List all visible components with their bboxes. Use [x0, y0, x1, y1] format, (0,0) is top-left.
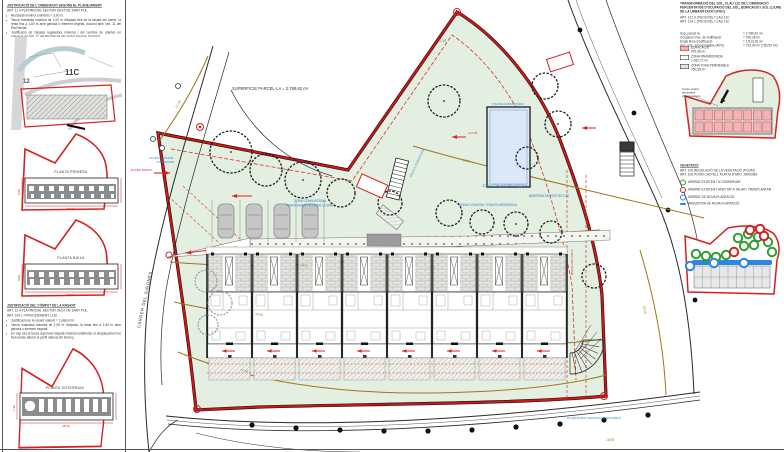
legend-label: EDIFICACIÓ: [691, 46, 709, 50]
legend-sub: 976,36 m²: [691, 50, 705, 54]
tree-new-icon: [680, 195, 686, 201]
sheet-border-bottom: [0, 449, 784, 450]
vegetation-title: VEGETACIÓ: [680, 164, 782, 168]
label-barrier: BARRERA DE PROTECCIÓ: [529, 193, 570, 198]
tree-removed-icon: [680, 187, 686, 193]
building-block: 8.00 50.04: [17, 178, 121, 211]
vegetation-diagram: [680, 224, 782, 320]
plan-planta-soterrani: PLANTA SOTERRANI 7.20 48.10: [5, 345, 125, 452]
tree-keep-icon: [680, 180, 686, 186]
veg-item-label: ARBRAT EXISTENT A CONSERVAR: [688, 181, 741, 185]
note-bullet: Justificació de la rasant natural = 1 pl…: [11, 319, 121, 323]
label-parking-zone-2: APARCAMENT A L'AIRE LLIURE: [286, 204, 333, 208]
map-label-12: 12: [23, 79, 30, 85]
parcel-surface-label: SUPERFÍCIE PARCEL·LA = 2.789,62 m²: [232, 86, 309, 91]
note-bullet: En cap cas la tanca superarà l'alçada mà…: [11, 332, 121, 340]
note-bullet: Reculada mínima a llindars = 3,00 m.: [11, 14, 121, 18]
label-access-ped-2: COMUNITARI: [156, 160, 174, 164]
street-name-label: CARRER DEL GIRONÈS: [136, 271, 153, 329]
plan-label: PLANTA BAIXA: [57, 256, 85, 260]
svg-text:21.40: 21.40: [174, 99, 182, 108]
legend-sub: 1.062,71 m²: [691, 59, 708, 63]
occupation-diagram: Sostre màxim admissible s/ planejament: [680, 66, 782, 158]
street-stairs-icon: [620, 142, 634, 176]
building-block: 7.20 48.10: [12, 393, 116, 428]
pool-outline: [753, 78, 763, 102]
label-access-car-bottom: ACCÉS RODAT VEHICLES APARCAMENT: [567, 415, 622, 420]
note-article: ART. 11.4 PLA PARCIAL SECTOR OEST DE SAN…: [7, 309, 121, 313]
plan-label: PLANTA PRIMERA: [54, 170, 88, 174]
plan-label: PLANTA SOTERRANI: [46, 386, 84, 390]
label-access-car-left: ACCÉS RODAT: [131, 167, 153, 172]
legend-label: ZONA PAVIMENTADA: [691, 55, 723, 59]
plan-planta-baixa: PLANTA BAIXA 8.00 50.04: [5, 217, 125, 303]
plan-planta-primera: PLANTA PRIMERA 8.00 50.04: [5, 131, 125, 217]
map-label-11c: 11C: [65, 68, 79, 77]
svg-text:16.95: 16.95: [606, 438, 614, 442]
left-notes-panel: JUSTIFICACIÓ DE L'ORDENACIÓ SEGONS EL PL…: [2, 0, 126, 452]
svg-text:19.10: 19.10: [642, 305, 647, 314]
article-ref: ART. 124.1 (PGOU/06). CLAU 11C: [680, 20, 782, 24]
note-title: JUSTIFICACIÓ DEL CÒMPUT DE LA RASANT: [7, 304, 121, 308]
plan-sheet: JUSTIFICACIÓ DE L'ORDENACIÓ SEGONS EL PL…: [0, 0, 784, 452]
building-block: 8.00 50.04: [17, 264, 121, 297]
location-key-map: 12 11C: [9, 37, 123, 130]
veg-item-label: ARBRAT EXISTENT AFECTAT A TALAR / TRASPL…: [688, 188, 771, 192]
note-bullet: Tanca massissa màxima de 1,00 m d'alçada…: [11, 19, 121, 31]
dim-width: 50.04: [67, 207, 75, 211]
svg-text:20.15: 20.15: [438, 39, 446, 43]
legend-swatch-paved: [680, 55, 689, 60]
svg-text:19.60: 19.60: [300, 263, 308, 267]
dim-height: 8.00: [17, 275, 21, 281]
label-level: +17.35: [468, 131, 478, 135]
label-setback: RECULADA 3,00 m: [570, 248, 574, 275]
label-pool-zone: ZONA COMUNITÀRIA PISCINA: [482, 184, 528, 188]
note-bullet: Tanca massissa màxima de 1,00 m d'alçada…: [11, 324, 121, 332]
dim-height: 7.20: [12, 405, 16, 411]
dim-width: 48.10: [62, 424, 70, 428]
paved-pad: [367, 234, 401, 246]
dim-width: 50.04: [67, 293, 75, 297]
note-article: ART. 104.1 I PROCEDIMENT, LLEI.: [7, 314, 121, 318]
note-title: JUSTIFICACIÓ DE L'ORDENACIÓ SEGONS EL PL…: [7, 4, 121, 8]
building-footprint-key: [27, 95, 107, 119]
veg-item-label: ARBUSTIVA DE NOVA PLANTACIÓ: [688, 202, 739, 206]
note-article: ART. 11.4 PLA PARCIAL SECTOR OEST DE SAN…: [7, 9, 121, 13]
site-plan: SUPERFÍCIE PARCEL·LA = 2.789,62 m² CARRE…: [125, 0, 705, 452]
dim-height: 8.00: [17, 189, 21, 195]
veg-item-label: ARBRAT DE NOVA PLANTACIÓ: [688, 196, 734, 200]
legend-swatch-building: [680, 46, 689, 51]
label-soft-zone: ZONA COMUNAL TOVA ENJARDINADA: [459, 203, 518, 207]
label-pool: PISCINA COMUNITÀRIA: [492, 102, 524, 106]
label-parking-zone: ZONA COMUNITÀRIA: [294, 199, 327, 203]
hedge-new-icon: [680, 203, 686, 205]
